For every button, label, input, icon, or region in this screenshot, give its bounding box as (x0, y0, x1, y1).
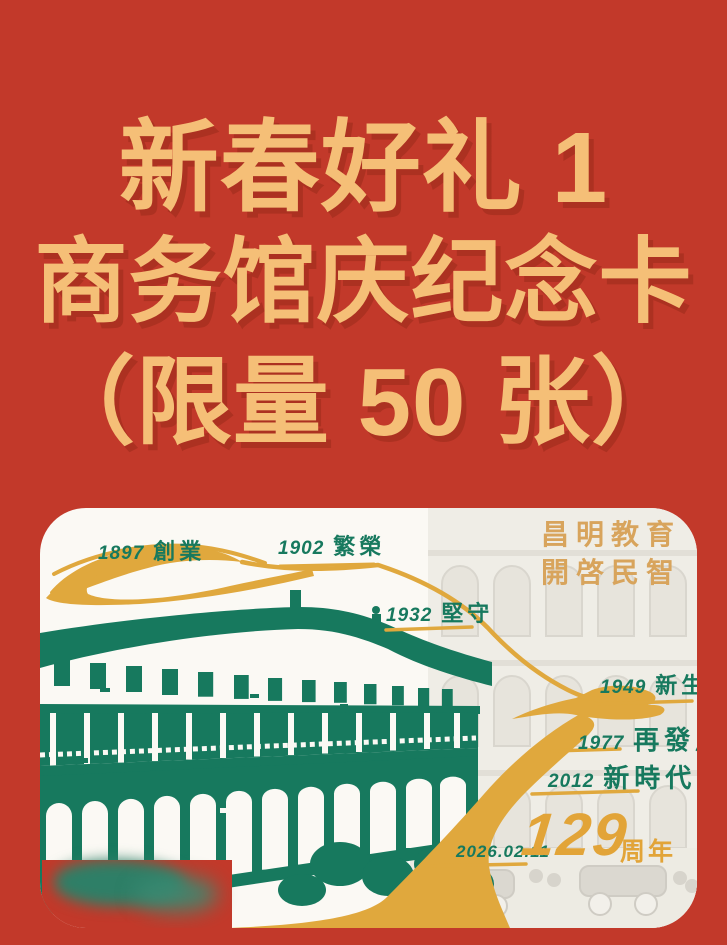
milestone-year: 1977 (578, 733, 624, 754)
milestone-label: 再發展 (633, 725, 697, 755)
title-line-3: （限量 50 张） (0, 324, 727, 463)
milestone-1932: 1932堅守 (386, 596, 493, 628)
milestone-1902: 1902繁榮 (278, 529, 385, 561)
milestone-year: 1902 (278, 538, 324, 559)
milestone-label: 創業 (153, 539, 205, 564)
milestone-label: 繁榮 (333, 534, 385, 559)
milestone-1897: 1897創業 (98, 534, 205, 566)
anniversary-number: 129 (519, 806, 631, 864)
title-line-2: 商务馆庆纪念卡 (0, 206, 727, 341)
milestone-1977: 1977再發展 (578, 720, 697, 757)
milestone-2012: 2012新時代 (548, 758, 696, 795)
anniversary-unit: 周年 (620, 832, 676, 868)
smudge-green-blob-2 (134, 876, 218, 912)
slogan-text: 昌明教育 開啓民智 (541, 516, 681, 592)
milestone-year: 1932 (386, 605, 432, 626)
slogan-line-1: 昌明教育 (541, 516, 681, 554)
poster-background: 新春好礼 1 商务馆庆纪念卡 （限量 50 张） (0, 0, 727, 945)
smudge-artifact (42, 860, 232, 928)
milestone-1949: 1949新生 (600, 668, 697, 700)
milestone-year: 2012 (548, 771, 594, 792)
milestone-label: 新時代 (603, 763, 696, 793)
milestone-year: 1949 (600, 677, 646, 698)
milestone-year: 1897 (98, 543, 144, 564)
slogan-line-2: 開啓民智 (541, 554, 681, 592)
commemorative-card-image: 昌明教育 開啓民智 1897創業 1902繁榮 1932堅守 1949新生 19… (40, 508, 697, 928)
milestone-label: 堅守 (441, 601, 493, 626)
milestone-label: 新生 (655, 673, 697, 698)
